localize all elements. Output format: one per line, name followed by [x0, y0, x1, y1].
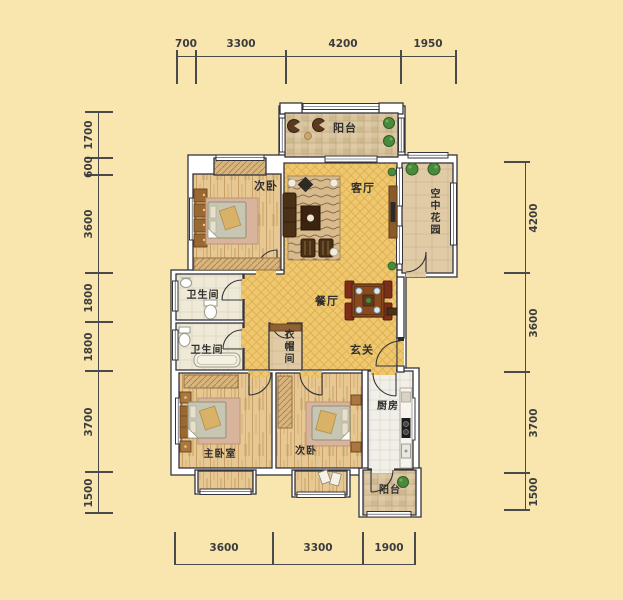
- dim-label: 3300: [303, 543, 332, 554]
- sink-icon: [181, 279, 192, 288]
- dim-label: 3700: [529, 408, 540, 437]
- nightstand-icon: [351, 442, 361, 452]
- kitchen-fixtures: [400, 388, 412, 468]
- plant-icon: [388, 168, 396, 176]
- dim-label: 3300: [226, 39, 255, 50]
- armchair-icon: [301, 239, 315, 257]
- plant-icon: [428, 163, 440, 175]
- side-table-icon: [305, 133, 312, 140]
- dim-label: 1800: [84, 332, 95, 361]
- room-label-bath-lower: 卫生间: [191, 346, 224, 356]
- dim-label: 3600: [529, 308, 540, 337]
- dim-label: 1800: [84, 283, 95, 312]
- lamp-icon: [288, 179, 296, 187]
- plant-icon: [384, 118, 395, 129]
- sofa-icon: [283, 193, 296, 237]
- foyer-right-wall: [397, 277, 404, 338]
- plant-icon: [406, 163, 418, 175]
- lamp-icon: [330, 248, 338, 256]
- room-label-master-bedroom: 主卧室: [204, 450, 237, 460]
- dim-label: 600: [84, 156, 95, 178]
- plant-icon: [384, 136, 395, 147]
- room-label-living: 客厅: [351, 183, 375, 194]
- dim-label: 1500: [84, 478, 95, 507]
- sink-icon: [402, 444, 411, 458]
- closet-strip: [194, 258, 280, 270]
- nightstand-icon: [351, 395, 361, 405]
- room-label-cloakroom: 衣帽间: [282, 329, 292, 365]
- bed-icon: [208, 202, 246, 238]
- entrance-threshold: [398, 337, 404, 341]
- room-balcony-top: [285, 113, 398, 157]
- dim-label: 1500: [529, 477, 540, 506]
- lamp-icon: [330, 179, 338, 187]
- toilet-icon: [179, 327, 190, 347]
- dim-label: 4200: [529, 203, 540, 232]
- closet-strip: [278, 376, 292, 428]
- room-label-bedroom-bottom: 次卧: [295, 447, 317, 457]
- bed-icon: [312, 406, 350, 440]
- dim-label: 3700: [84, 407, 95, 436]
- room-label-foyer: 玄关: [350, 345, 374, 356]
- dim-label: 1700: [84, 120, 95, 149]
- bed-icon: [188, 402, 226, 438]
- room-label-dining: 餐厅: [315, 296, 339, 307]
- room-label-bedroom-top: 次卧: [254, 181, 278, 192]
- tv-icon: [391, 202, 396, 222]
- plant-icon: [366, 298, 371, 303]
- foyer-right-wall-lower: [397, 366, 404, 372]
- stove-icon: [402, 418, 411, 438]
- room-label-kitchen: 厨房: [377, 402, 399, 412]
- dim-label: 1900: [374, 543, 403, 554]
- room-label-balcony-top: 阳台: [333, 123, 357, 134]
- dim-label: 4200: [328, 39, 357, 50]
- closet-strip: [184, 375, 238, 388]
- floorplan-canvas: 阳台 次卧 客厅 空中花园 卫生间 卫生间 餐厅 衣帽间 玄关 主卧室 次卧 厨…: [0, 0, 623, 600]
- toilet-icon: [204, 300, 217, 319]
- room-label-bath-upper: 卫生间: [187, 291, 220, 301]
- dim-label: 1950: [413, 39, 442, 50]
- room-label-sky-garden: 空中花园: [428, 188, 438, 236]
- dim-label: 3600: [209, 543, 238, 554]
- shoe-cabinet-icon: [387, 308, 397, 315]
- dim-label: 3600: [84, 209, 95, 238]
- room-label-balcony-bottom: 阳台: [379, 486, 401, 496]
- plant-icon: [388, 262, 396, 270]
- dim-label: 700: [175, 39, 197, 50]
